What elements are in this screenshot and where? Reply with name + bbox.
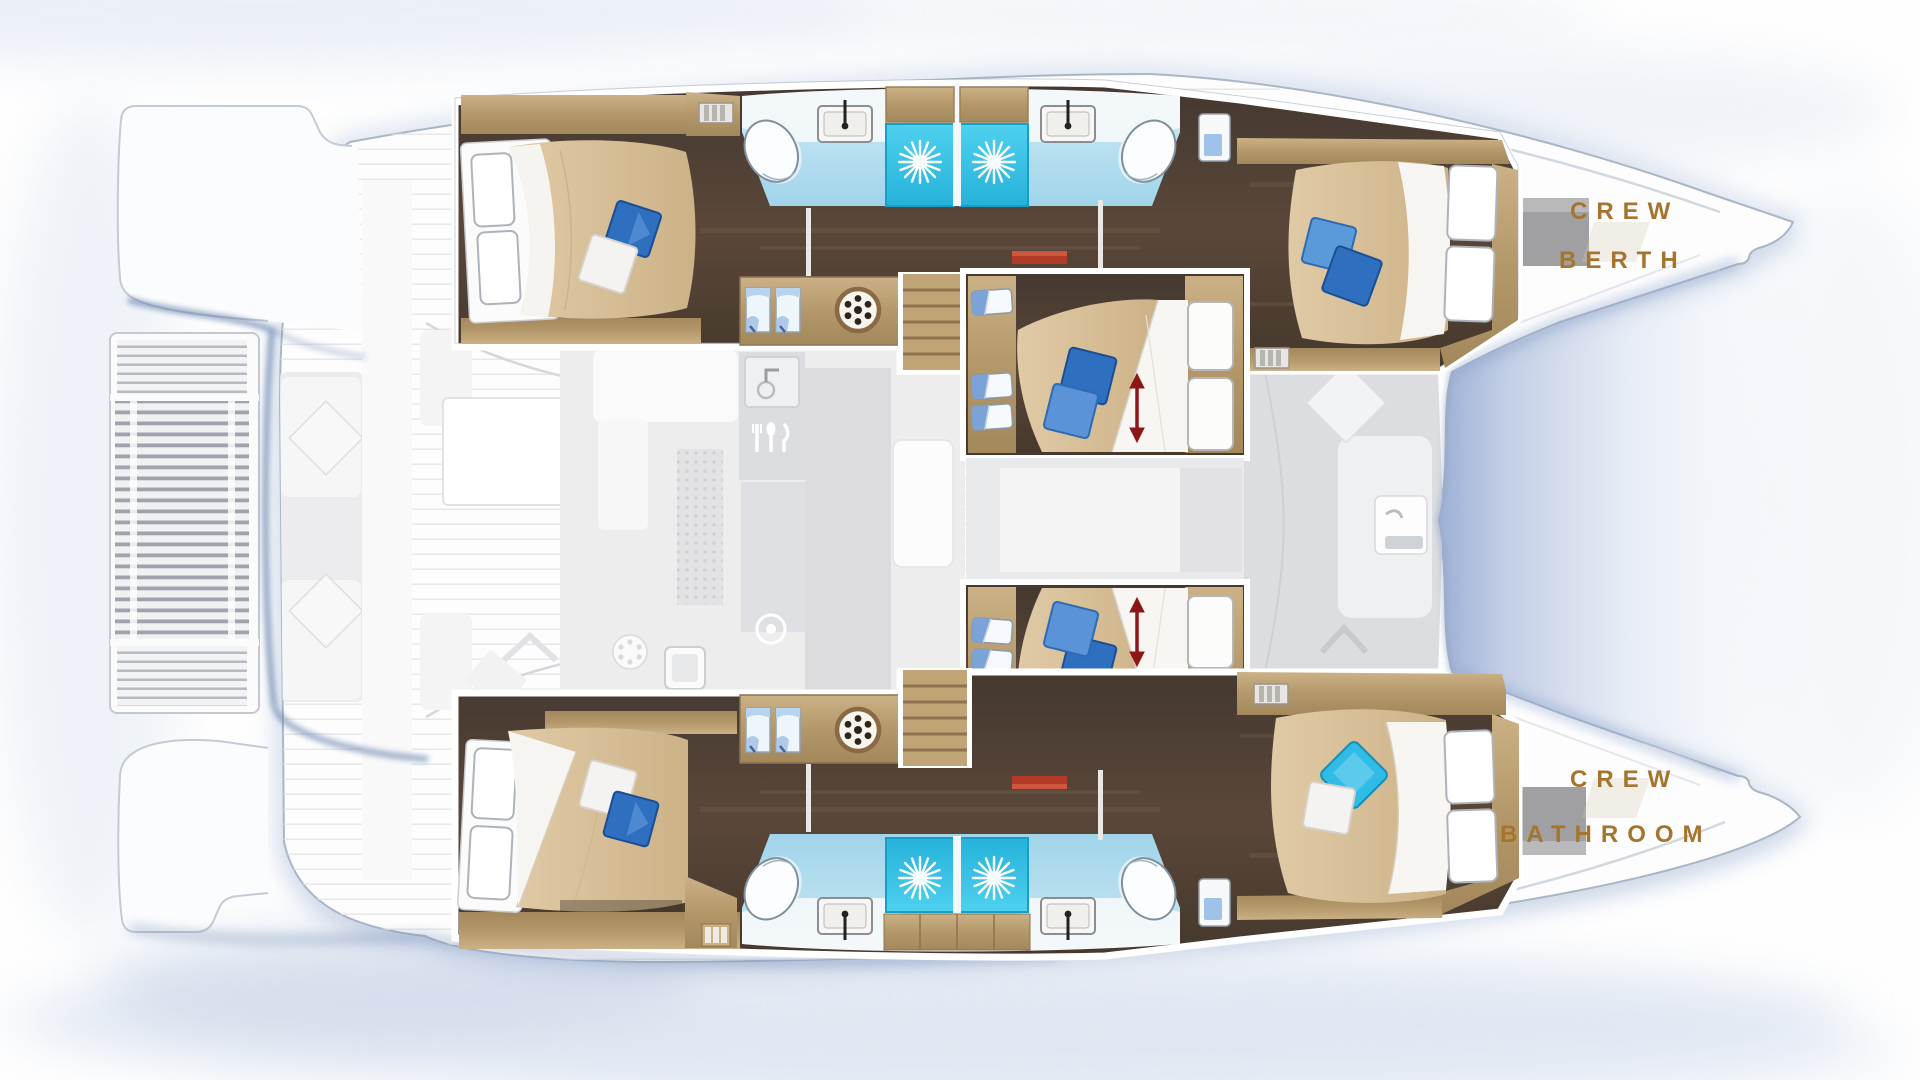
svg-text:BERTH: BERTH xyxy=(1559,247,1687,274)
svg-text:CREW: CREW xyxy=(1570,766,1679,793)
svg-text:BATHROOM: BATHROOM xyxy=(1500,821,1712,848)
svg-text:CREW: CREW xyxy=(1570,198,1679,225)
